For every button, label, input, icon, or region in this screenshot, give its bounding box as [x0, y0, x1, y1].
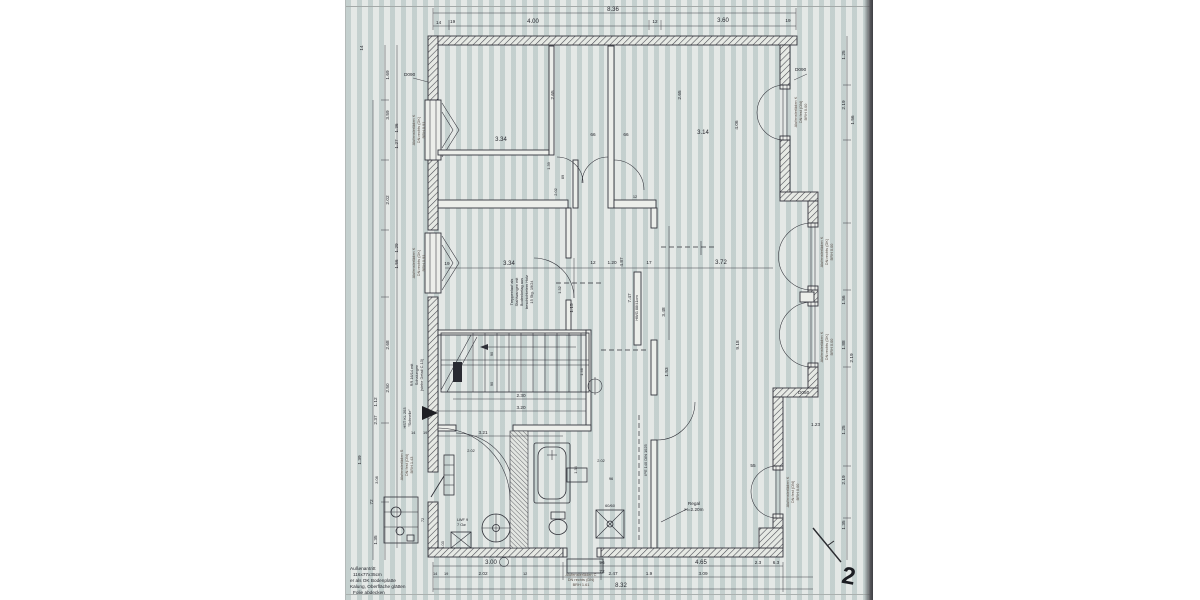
dim-label: 12: [633, 194, 637, 199]
french-window-right-2: [780, 292, 819, 367]
dim-label: 8.32: [615, 583, 627, 589]
pier-box: [800, 292, 814, 302]
dim-label: 2.19: [841, 475, 846, 485]
door-label: Alufensterläden C DN rechts (DN) BRH 1.6…: [566, 572, 597, 587]
svg-text:Außenantritt: Außenantritt: [350, 566, 376, 571]
dim-label: 3.21: [478, 430, 488, 435]
door-arc: [614, 160, 644, 190]
dim-label: 1.36: [394, 123, 399, 133]
outer-walls: [428, 36, 818, 557]
dim-label: 90: [489, 351, 494, 356]
svg-text:BRH 0.91: BRH 0.91: [421, 122, 426, 139]
beam-note: IPE 140 DIN 1025: [643, 444, 648, 475]
dim-label: 2.02: [597, 458, 605, 463]
dim-label: 1.35: [373, 535, 378, 545]
dim-label: 12: [590, 260, 596, 265]
dim-label: 2.65: [550, 90, 555, 100]
floor-plan-drawing: 8.36 14 19 4.00 12 3.60 19 1.69 3.59 1.3…: [346, 0, 873, 600]
outdoor-unit-icon: [596, 510, 624, 538]
door-arc: [780, 335, 813, 368]
door-leaf: [431, 476, 444, 497]
door-arc: [534, 258, 574, 298]
dim-label: 17: [646, 260, 652, 265]
shutter-icon: [442, 103, 459, 157]
dim-label: 2.3: [755, 560, 762, 565]
dim-label: 66: [590, 132, 596, 137]
dim-label: 1.9: [646, 571, 653, 576]
dim-label: 66: [623, 132, 629, 137]
dim-label: 1.32: [557, 286, 562, 294]
fixture-note: LWF 9 7 Oø: [457, 517, 468, 527]
toilet-icon: [549, 512, 567, 535]
dim-label: 1.25: [841, 50, 846, 60]
stair-note: RR 16/14 mit Schalungen (siehe Detail C.…: [409, 358, 424, 391]
dim-label: 1.35: [841, 520, 846, 530]
handwritten-page-mark: 2: [813, 528, 858, 591]
dim-label: 2.30: [516, 393, 526, 398]
dim-label: 3.09: [698, 571, 708, 576]
dim-label: 4.06: [734, 120, 739, 130]
dim-label: 14: [433, 571, 438, 576]
dim-label: 2.02: [478, 571, 488, 576]
dim-label: 2.19: [849, 353, 854, 363]
north-mark: 2: [840, 562, 858, 591]
svg-text:Regal: Regal: [688, 501, 700, 506]
marker-circle-icon: [500, 558, 509, 567]
door-label: Alufensterläden S DN fest (DN) BRH 1.43: [399, 449, 414, 480]
staircase: [441, 333, 602, 395]
dim-label: 2.02: [467, 448, 475, 453]
window-label: Alufensterläden K DN rechts (DK) BRH 0.0…: [819, 236, 834, 267]
svg-text:Kalung, Oberfläche glätten: Kalung, Oberfläche glätten: [350, 584, 406, 589]
dim-label: 9.18: [735, 340, 740, 350]
door-arc: [438, 428, 510, 500]
dim-label: 6.3: [773, 560, 780, 565]
dim-label: 2.47: [608, 571, 618, 576]
door-tag: D090: [404, 72, 416, 77]
dim-label: 1.69: [385, 70, 390, 80]
stair-direction-arrow: [480, 344, 488, 350]
svg-text:BRH 0.00: BRH 0.00: [829, 243, 834, 261]
newel-post: [453, 362, 462, 382]
svg-text:H=2.20m: H=2.20m: [684, 507, 703, 512]
dim-label: 3.48: [661, 307, 666, 317]
unit-size-note: 60/60: [605, 503, 616, 508]
dim-label: 3.20: [516, 405, 526, 410]
shelf-note: Regal H=2.20m: [684, 501, 703, 512]
window-left-2: [425, 233, 459, 293]
french-window-right-3: [751, 466, 783, 518]
dim-label: 1.27: [394, 139, 399, 149]
dim-label: 2.02: [385, 195, 390, 205]
window-label: Alufensterläden K DN rechts (DK) BRH 0.9…: [411, 247, 426, 278]
door-arc: [779, 223, 813, 257]
bathtub-icon: [534, 443, 570, 503]
blueprint-paper: 8.36 14 19 4.00 12 3.60 19 1.69 3.59 1.3…: [345, 0, 873, 600]
dim-label: 96: [609, 476, 613, 481]
dim-label: 2.19: [841, 100, 846, 110]
svg-text:BRH 0.00: BRH 0.00: [795, 483, 800, 501]
door-tag: D050: [798, 390, 810, 395]
dim-label: 90: [489, 381, 494, 386]
svg-text:"Schnelle": "Schnelle": [407, 409, 412, 427]
corner-note: Außenantritt 116x77x35cm er als OK Boden…: [350, 566, 406, 595]
dim-label: 19: [444, 571, 448, 576]
dim-label: 3.60: [717, 18, 729, 24]
hst-note: HST KL 203 "Schnelle": [402, 408, 412, 429]
dim-label: 55: [750, 463, 756, 468]
dim-label: 1.23: [811, 422, 821, 427]
dim-label: 1.20: [607, 260, 617, 265]
dim-label: 1.53: [664, 367, 669, 377]
dim-label: 1.03: [440, 541, 445, 549]
dim-label: 1.56: [850, 115, 855, 125]
svg-text:116x77x35cm: 116x77x35cm: [353, 572, 382, 577]
svg-text:BRH 0.91: BRH 0.91: [421, 255, 426, 272]
shaft-hatch: [510, 431, 528, 548]
leader-line: [661, 509, 687, 522]
dim-label: 7.47: [627, 293, 632, 303]
dim-label: 4.87: [619, 257, 624, 267]
dim-label: 3.59: [385, 110, 390, 120]
dim-label: 2.02: [553, 188, 558, 196]
pier-note: HWG 88/41cm: [634, 295, 639, 321]
dim-label: 96: [599, 560, 605, 565]
svg-text:er als OK Bodenplatte: er als OK Bodenplatte: [350, 578, 396, 583]
window-label: Alufensterläden K DN rechts (DK) BRH 0.9…: [411, 114, 426, 145]
leader-line: [813, 528, 841, 562]
bottom-dimensions: 3.00 96 72 4.65 2.3 6.3 2.02 2.47 1.9 3.…: [433, 560, 780, 589]
svg-text:15 Stg. 19/24: 15 Stg. 19/24: [529, 280, 534, 304]
door-arc: [582, 157, 608, 183]
dim-label: 12: [652, 19, 658, 24]
window-label: Alufensterläden K DN fest (DN) BRH 0.00: [793, 96, 808, 127]
dim-label: 1.39: [546, 162, 551, 170]
window-label: Alufensterläden K DN fest (DN) BRH 0.00: [785, 476, 800, 507]
french-window-right-1: [779, 223, 819, 290]
interior-walls: [438, 46, 657, 557]
left-dimensions: 1.69 3.59 1.36 1.27 2.02 1.29 1.56 2.68 …: [357, 45, 399, 545]
dim-label: 1.56: [841, 295, 846, 305]
dim-label: 4.65: [695, 560, 707, 566]
top-dimensions: 8.36 14 19 4.00 12 3.60 19: [436, 7, 791, 25]
dim-label: 12: [523, 571, 527, 576]
dim-label: 2.50: [385, 383, 390, 393]
leader-line: [413, 78, 428, 82]
shower-icon: [482, 514, 510, 542]
window-label: Alufensterläden K DN rechts (DK) BRH 0.0…: [819, 331, 834, 362]
dim-label: 19: [450, 19, 456, 24]
dim-label: 1.29: [394, 243, 399, 253]
dim-label: 2.68: [385, 340, 390, 350]
dim-label: 72: [599, 569, 605, 574]
door-arc: [456, 433, 513, 490]
dim-label: 2.65: [677, 90, 682, 100]
dim-label: 72: [420, 518, 425, 522]
dim-label: 2.37: [373, 415, 378, 425]
svg-text:7 Oø: 7 Oø: [457, 522, 466, 527]
dim-label: 19: [444, 261, 450, 266]
dim-label: 14: [359, 45, 364, 51]
dim-label: 8.36: [607, 7, 619, 13]
dim-label: 89: [560, 175, 565, 179]
svg-text:BRH 1.43: BRH 1.43: [409, 457, 414, 474]
svg-text:BRH 0.00: BRH 0.00: [829, 338, 834, 356]
dim-label: 1.39: [357, 455, 362, 465]
dim-label: 14: [411, 430, 416, 435]
paper-edge-shadow: [864, 0, 873, 600]
door-arc: [657, 402, 695, 440]
dim-label: 72: [369, 499, 374, 505]
dim-label: 1.46: [579, 368, 584, 376]
washer-icon: [451, 532, 471, 548]
door-arc: [780, 302, 813, 335]
dim-label: 4.00: [527, 19, 539, 25]
dim-label: 1.56: [394, 259, 399, 269]
dim-label: 14: [436, 20, 442, 25]
dim-label: 1.25: [841, 425, 846, 435]
leader-line: [794, 74, 807, 80]
dim-label: 3.14: [697, 130, 709, 136]
dim-label: 3.72: [715, 260, 727, 266]
svg-text:BRH 0.00: BRH 0.00: [803, 103, 808, 121]
dim-label: 3.34: [503, 261, 515, 267]
construction-note: Treppenlauf als Stahlwangen mit Bodenbel…: [509, 275, 534, 309]
svg-text:(siehe Detail C.13): (siehe Detail C.13): [419, 358, 424, 391]
dim-label: 1.34: [573, 465, 578, 473]
dim-label: 1.12: [373, 397, 378, 407]
dim-label: 19: [423, 430, 427, 435]
dim-label: 3.34: [495, 137, 507, 143]
screenshot-canvas: 8.36 14 19 4.00 12 3.60 19 1.69 3.59 1.3…: [0, 0, 1200, 600]
svg-text:Folie abdecken: Folie abdecken: [353, 590, 385, 595]
dim-label: 3.08: [374, 476, 379, 484]
dim-label: 1.88: [841, 340, 846, 350]
door-tag: D090: [795, 67, 807, 72]
dim-label: 3.00: [485, 560, 497, 566]
svg-text:BRH 1.61: BRH 1.61: [573, 582, 590, 587]
door-arc: [779, 257, 813, 291]
dim-label: 19: [785, 18, 791, 23]
dim-label: 1.15: [569, 303, 574, 313]
french-window-right-top: [757, 85, 790, 140]
